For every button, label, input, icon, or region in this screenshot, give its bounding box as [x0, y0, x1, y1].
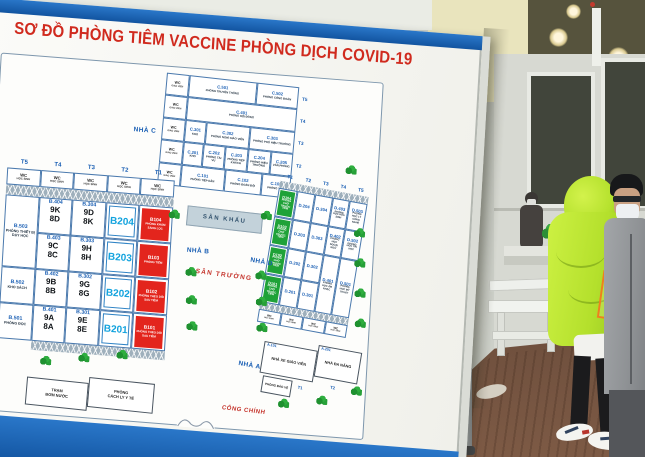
classroom-cell: B.3029G8G	[66, 271, 102, 310]
room-cell: C.203PHÒNG TIẾP KHÁCH	[224, 147, 249, 172]
tree-icon	[261, 210, 272, 220]
wc-cell: WCHỌC SINH	[140, 178, 174, 198]
person-gray-hoodie	[604, 174, 645, 457]
guard-box: PHÒNG BẢO VỆ	[260, 375, 292, 397]
tree-icon	[345, 165, 356, 175]
building-a-group: A.101 NHÀ XE GIÁO VIÊN A.201 NHÀ ĐA NĂNG…	[256, 331, 367, 411]
tree-icon	[354, 258, 365, 268]
isolation-room-box: PHÒNGCÁCH LY Y TẾ	[87, 377, 155, 414]
wc-cell: WCGIÁO VIÊN	[159, 140, 184, 165]
tree-icon	[316, 395, 327, 405]
building-b-label: NHÀ B	[187, 247, 210, 256]
body	[520, 205, 543, 249]
building-a-label: NHÀ A	[238, 360, 261, 371]
wc-cell: WCHỌC SINH	[301, 317, 325, 334]
classroom-cell: B.4039C8C	[35, 233, 71, 272]
door-frame	[592, 8, 601, 66]
room-cell: C.301KHO	[184, 120, 207, 145]
floor-label: T4	[295, 110, 310, 134]
indicator-light-icon	[590, 2, 595, 7]
tree-icon	[256, 322, 267, 332]
room-cell: C.102PHÒNG ĐOÀN ĐỘI	[223, 169, 262, 195]
tree-icon	[278, 398, 289, 408]
main-gate-label: CỔNG CHÍNH	[221, 405, 266, 416]
wc-cell: WCHỌC SINH	[40, 170, 74, 190]
classroom-cell: B.3019E8E	[64, 307, 100, 346]
pump-station-box: TRẠMBƠM NƯỚC	[25, 377, 89, 411]
ceiling-light-icon	[566, 4, 581, 19]
leg	[570, 356, 591, 431]
ceiling-light-icon	[549, 28, 568, 47]
tree-icon	[186, 321, 197, 331]
wc-cell: WCHỌC SINH	[107, 175, 141, 195]
building-b-table: T5 T4 T3 T2 T1 WCHỌC SINH WCHỌC SINH WCH…	[0, 156, 175, 360]
wc-cell: WCGIÁO VIÊN	[161, 117, 186, 142]
zipper	[630, 234, 632, 384]
classroom-cell: B.4049K8D	[37, 197, 73, 236]
room-cell: B204	[104, 202, 140, 241]
photo-scene: SƠ ĐỒ PHÒNG TIÊM VACCINE PHÒNG DỊCH COVI…	[0, 0, 645, 457]
tree-icon	[78, 353, 89, 363]
wc-cell: WCGIÁO VIÊN	[163, 95, 188, 120]
room-cell: B.502KHO SÁCH	[0, 266, 35, 305]
wc-cell: WCHỌC SINH	[279, 313, 303, 330]
room-cell: B201	[98, 310, 134, 349]
tree-icon	[351, 386, 362, 396]
vaccine-room-cell: B104PHÒNG KHÁM SÀNG LỌC	[138, 205, 174, 244]
jacket-fold	[556, 236, 606, 268]
vaccine-room-cell: B102PHÒNG THEO DÕI SAU TIÊM	[134, 277, 170, 316]
floor-label: T3	[293, 132, 308, 156]
gate-arc-icon	[177, 413, 216, 429]
classroom-cell: B.4029B8B	[33, 269, 69, 308]
wc-cell: WCHỌC SINH	[323, 321, 347, 338]
tree-icon	[169, 209, 180, 219]
room-cell: C.204PHÒNG HIỆU TRƯỞNG	[247, 149, 272, 174]
vaccine-room-cell: B103PHÒNG TIÊM	[136, 241, 172, 280]
room-cell: C.202PHÒNG TÀI VỤ	[202, 144, 226, 169]
room-cell: B.503PHÒNG THIẾT BỊ DẠY HỌC	[2, 194, 40, 269]
glasses	[613, 196, 641, 202]
utility-boxes: TRẠMBƠM NƯỚC PHÒNGCÁCH LY Y TẾ	[25, 371, 157, 418]
classroom-cell: B.3039H8H	[69, 236, 105, 275]
floor-label: T5	[297, 87, 312, 111]
wc-cell: WCHỌC SINH	[6, 167, 40, 187]
floor-label: T2	[330, 386, 336, 391]
tree-icon	[185, 267, 196, 277]
vaccine-room-cell: B101PHÒNG THEO DÕI SAU TIÊM	[131, 313, 167, 352]
pants	[609, 390, 645, 457]
room-cell: B203	[102, 238, 138, 277]
tree-icon	[186, 295, 197, 305]
room-cell: C.101PHÒNG TIẾP DÂN	[180, 164, 225, 191]
tree-icon	[355, 318, 366, 328]
tree-icon	[255, 270, 266, 280]
tree-icon	[354, 228, 365, 238]
multipurpose-box: A.201 NHÀ ĐA NĂNG	[314, 345, 363, 385]
school-map: NHÀ C WCGIÁO VIÊN C.501PHÒNG TRUYỀN THÔN…	[0, 53, 384, 441]
classroom-cell: B.4019A8A	[31, 305, 67, 344]
whiteboard: SƠ ĐỒ PHÒNG TIÊM VACCINE PHÒNG DỊCH COVI…	[0, 0, 491, 457]
wc-cell: WCGIÁO VIÊN	[165, 73, 190, 98]
jacket	[604, 218, 645, 394]
yard-label: SÂN TRƯỜNG	[195, 268, 253, 282]
tree-icon	[40, 356, 51, 366]
building-c-label: NHÀ C	[133, 126, 156, 135]
floor-label: T1	[297, 386, 303, 391]
stage-box: SÂN KHẤU	[186, 205, 263, 234]
room-cell: B202	[100, 274, 136, 313]
room-cell: C.201KHO	[182, 142, 204, 166]
room-cell: B.501PHÒNG ĐỌC	[0, 302, 33, 341]
tree-icon	[256, 296, 267, 306]
tree-icon	[116, 349, 127, 359]
tree-icon	[354, 288, 365, 298]
wc-cell: WCHỌC SINH	[73, 173, 107, 193]
classroom-cell: B.3049D8K	[71, 200, 107, 239]
